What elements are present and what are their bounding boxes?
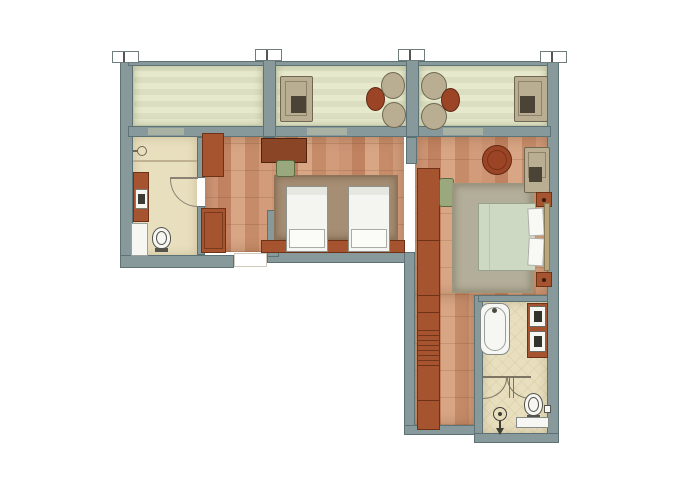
luggage-rack: [202, 133, 224, 177]
balcony-railing: [128, 61, 551, 66]
wall-bathroom-right-bottom: [474, 433, 559, 443]
section-tick: [540, 51, 567, 63]
section-tick-mark: [551, 52, 553, 62]
closet-line: [417, 295, 440, 296]
entry-threshold: [234, 253, 267, 267]
balcony-divider-right: [406, 50, 419, 137]
toilet-right-seat: [528, 397, 539, 412]
wall-twin-bottom: [267, 252, 415, 263]
section-tick: [112, 51, 139, 63]
closet-long: [417, 168, 440, 430]
section-tick-mark: [266, 50, 268, 60]
nightstand-top-knob: [542, 198, 546, 202]
section-tick-mark: [409, 50, 411, 60]
twin-bed-1-sheet: [287, 187, 327, 195]
wall-niche: [544, 405, 551, 413]
shower-head-dot: [498, 412, 502, 416]
sink-right-1-basin: [534, 311, 542, 322]
section-tick-mark: [123, 52, 125, 62]
section-tick: [255, 49, 282, 61]
closet-line: [417, 365, 440, 366]
door-leaf-bathroom-left: [170, 177, 198, 179]
balcony-door-left: [148, 128, 184, 135]
closet-hatch: [418, 330, 439, 365]
floor-plan: [0, 0, 700, 495]
entry-wardrobe-frame: [204, 212, 223, 249]
shower-door-hinge: [513, 378, 514, 398]
sink-left-basin: [138, 194, 145, 204]
shower-drain-arrow: [496, 428, 504, 435]
nightstand-bottom-knob: [542, 278, 546, 282]
wall-sink-icon: [137, 146, 147, 156]
toilet-left-seat: [156, 231, 167, 245]
balcony-chair: [381, 72, 405, 99]
balcony-armchair-middle-seat: [291, 96, 306, 113]
bathtub-faucet: [492, 308, 497, 313]
sink-right-2-basin: [534, 336, 542, 347]
master-pillow-2: [527, 238, 544, 267]
shower-door-hinge: [509, 378, 510, 398]
balcony-armchair-right-seat: [520, 96, 535, 113]
desk-chair-twin: [276, 160, 295, 177]
toilet-left-base: [155, 248, 168, 252]
balcony-floor-left: [133, 64, 263, 126]
master-pillow-1: [527, 208, 544, 237]
shower-divider-line: [133, 160, 197, 162]
master-bed-fold: [489, 204, 490, 270]
bathtub-basin: [484, 307, 506, 351]
closet-line: [417, 312, 440, 313]
balcony-divider-left: [263, 50, 276, 137]
wall-bathroom-right-top: [478, 295, 548, 302]
master-headboard: [544, 203, 550, 271]
wall-corridor-bottom: [404, 425, 478, 435]
armchair-master-seat: [529, 167, 542, 182]
closet-line: [417, 400, 440, 401]
wall-stub-master: [406, 137, 417, 164]
balcony-door-right: [443, 128, 483, 135]
twin-bed-2-pillow: [351, 229, 387, 248]
balcony-table-right: [441, 88, 460, 112]
balcony-chair: [382, 102, 406, 128]
side-table-master-ring: [487, 150, 507, 170]
bath-bench: [516, 417, 549, 428]
wall-exterior-bottom-left: [120, 255, 234, 268]
wall-sink-stem: [133, 150, 138, 152]
shower-tray-left: [131, 223, 148, 256]
balcony-door-middle: [307, 128, 347, 135]
section-tick: [398, 49, 425, 61]
closet-line: [417, 240, 440, 241]
twin-bed-2-sheet: [349, 187, 389, 195]
twin-bed-1-pillow: [289, 229, 325, 248]
wall-wing-left: [404, 252, 415, 435]
